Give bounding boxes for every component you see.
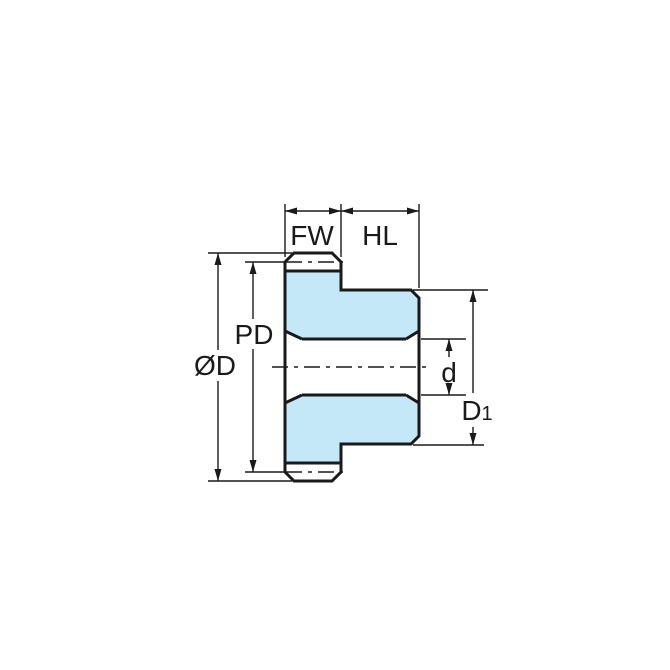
pd-label: PD (235, 319, 274, 350)
d1-arrow-up (470, 290, 477, 302)
d1-label: D1 (461, 395, 492, 426)
od-arrow-down (215, 469, 222, 481)
pd-arrow-down (250, 460, 257, 472)
d1-label-base: D (461, 395, 481, 426)
hl-label: HL (362, 220, 398, 251)
dimension-pitch-diameter: PD (235, 262, 274, 472)
fw-arrow-right (329, 208, 341, 215)
od-label: ØD (194, 350, 236, 381)
d-label: d (441, 357, 457, 388)
hl-arrow-right (407, 208, 419, 215)
d-arrow-up (446, 339, 453, 351)
fw-arrow-left (285, 208, 297, 215)
gear-dimension-diagram: FW HL ØD PD d D1 (0, 0, 670, 670)
pd-arrow-up (250, 262, 257, 274)
d1-label-subscript: 1 (482, 403, 493, 425)
od-arrow-up (215, 253, 222, 265)
dimension-bore-diameter: d (421, 339, 466, 395)
d1-arrow-down (470, 433, 477, 445)
fw-label: FW (290, 220, 334, 251)
hl-arrow-left (341, 208, 353, 215)
